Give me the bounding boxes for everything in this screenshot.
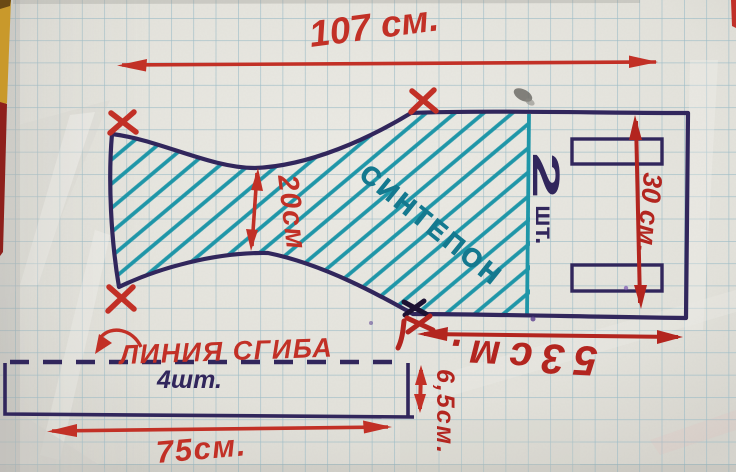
svg-text:53cм.: 53cм. xyxy=(438,330,598,385)
svg-text:2: 2 xyxy=(525,152,568,199)
svg-text:шт.: шт. xyxy=(530,205,560,244)
svg-text:6,5см.: 6,5см. xyxy=(431,369,459,455)
svg-text:4шт.: 4шт. xyxy=(156,366,222,394)
